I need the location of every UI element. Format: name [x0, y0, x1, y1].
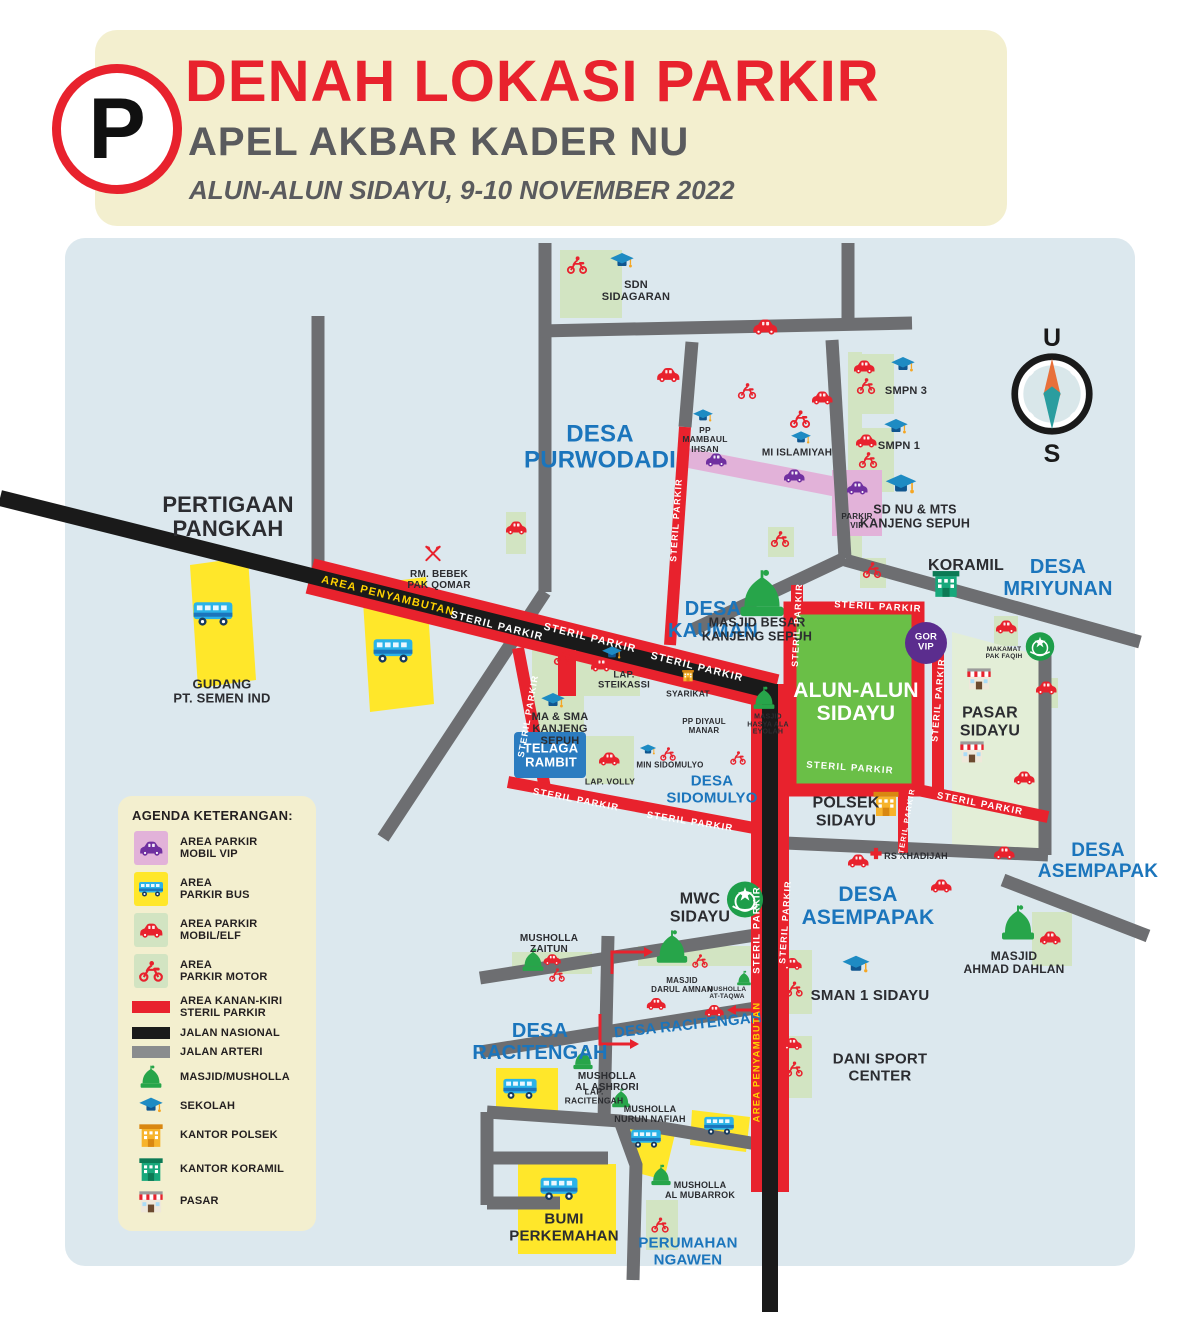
legend-item-label: AREA PARKIR MOBIL VIP — [180, 836, 257, 861]
legend-key — [132, 1046, 170, 1058]
legend-item-area-parkir-motor: AREA PARKIR MOTOR — [132, 954, 304, 988]
event-date-line: ALUN-ALUN SIDAYU, 9-10 NOVEMBER 2022 — [189, 175, 735, 206]
legend-item-area-parkir-bus: AREA PARKIR BUS — [132, 872, 304, 906]
parking-sign-icon: P — [52, 64, 182, 194]
legend-item-label: JALAN ARTERI — [180, 1046, 263, 1058]
legend-key — [132, 954, 170, 988]
pasar-icon — [132, 1189, 170, 1214]
moto-icon — [134, 954, 168, 988]
alun-alun-square — [790, 608, 918, 790]
page-subtitle: APEL AKBAR KADER NU — [188, 120, 689, 165]
legend-bar-swatch — [132, 1027, 170, 1039]
legend-item-label: KANTOR POLSEK — [180, 1129, 278, 1141]
legend-item-label: KANTOR KORAMIL — [180, 1163, 284, 1175]
legend-item-label: SEKOLAH — [180, 1100, 235, 1112]
legend-item-label: AREA PARKIR MOBIL/ELF — [180, 918, 257, 943]
compass: U S — [1006, 326, 1098, 467]
legend-item-kantor-polsek: KANTOR POLSEK — [132, 1122, 304, 1148]
koramil-icon — [132, 1156, 170, 1182]
legend-item-label: MASJID/MUSHOLLA — [180, 1071, 290, 1083]
legend-item-label: PASAR — [180, 1195, 219, 1207]
bus-icon — [134, 872, 168, 906]
legend-key — [132, 831, 170, 865]
compass-rose-icon — [1009, 351, 1095, 437]
car-icon — [134, 913, 168, 947]
red-post-marker — [558, 650, 576, 696]
legend-bar-swatch — [132, 1046, 170, 1058]
legend-item-jalan-arteri: JALAN ARTERI — [132, 1046, 304, 1058]
parking-map-poster: { "colors":{"accent_red":"#e8222d","labe… — [0, 0, 1200, 1331]
legend-item-label: JALAN NASIONAL — [180, 1027, 280, 1039]
legend-item-label: AREA PARKIR MOTOR — [180, 959, 268, 984]
legend-item-area-kanan-kiri-steril-parkir: AREA KANAN-KIRI STERIL PARKIR — [132, 995, 304, 1020]
legend-item-jalan-nasional: JALAN NASIONAL — [132, 1027, 304, 1039]
gor-vip-badge — [905, 622, 947, 664]
legend-item-kantor-koramil: KANTOR KORAMIL — [132, 1156, 304, 1182]
parking-sign-letter: P — [88, 80, 145, 179]
page-title: DENAH LOKASI PARKIR — [185, 48, 880, 115]
legend-item-area-parkir-mobil-elf: AREA PARKIR MOBIL/ELF — [132, 913, 304, 947]
legend-bar-swatch — [132, 1001, 170, 1013]
legend-key — [132, 1001, 170, 1013]
legend-key — [132, 1027, 170, 1039]
compass-south-label: S — [1006, 442, 1098, 467]
legend-item-label: AREA PARKIR BUS — [180, 877, 250, 902]
legend-item-area-parkir-mobil-vip: AREA PARKIR MOBIL VIP — [132, 831, 304, 865]
car-icon — [134, 831, 168, 865]
legend-item-sekolah: SEKOLAH — [132, 1097, 304, 1115]
legend-items: AREA PARKIR MOBIL VIPAREA PARKIR BUSAREA… — [132, 831, 304, 1214]
telaga-rambit-area — [514, 732, 586, 778]
legend-item-label: AREA KANAN-KIRI STERIL PARKIR — [180, 995, 282, 1020]
legend-item-masjid-musholla: MASJID/MUSHOLLA — [132, 1065, 304, 1090]
mosque-icon — [132, 1065, 170, 1090]
cap-icon — [132, 1097, 170, 1115]
legend-panel: AGENDA KETERANGAN: AREA PARKIR MOBIL VIP… — [118, 796, 316, 1231]
legend-key — [132, 913, 170, 947]
polsek-icon — [132, 1122, 170, 1148]
compass-north-label: U — [1006, 326, 1098, 351]
legend-title: AGENDA KETERANGAN: — [132, 808, 304, 823]
legend-key — [132, 872, 170, 906]
legend-item-pasar: PASAR — [132, 1189, 304, 1214]
